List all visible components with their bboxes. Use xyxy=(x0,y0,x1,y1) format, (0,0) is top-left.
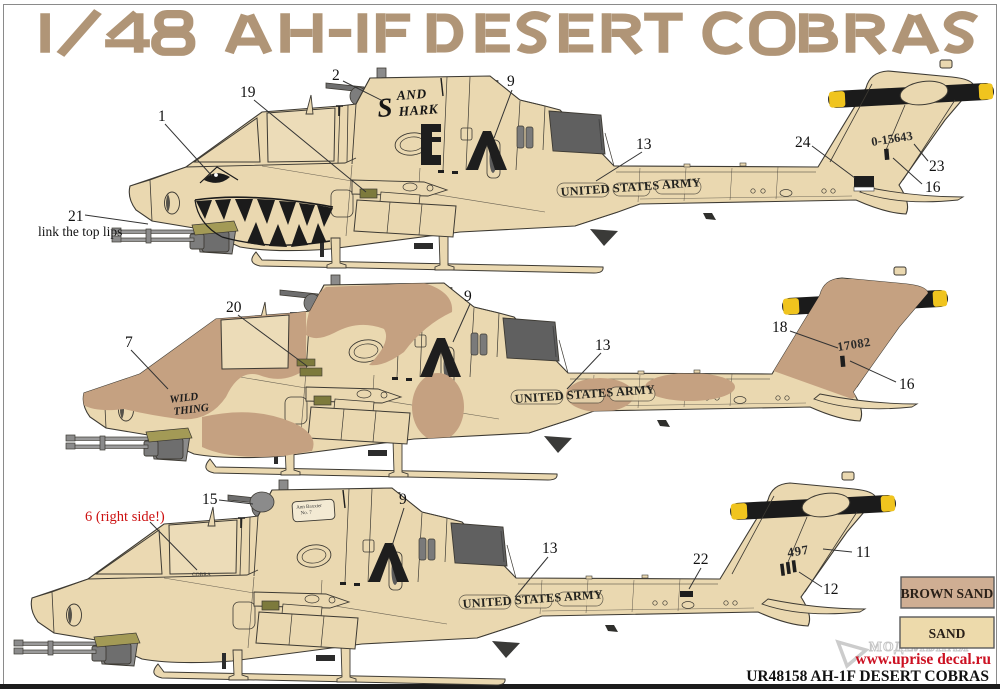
svg-text:12: 12 xyxy=(823,581,839,598)
svg-text:22: 22 xyxy=(693,551,709,568)
svg-text:9: 9 xyxy=(507,73,515,90)
svg-text:23: 23 xyxy=(929,158,945,175)
svg-text:7: 7 xyxy=(125,334,133,351)
svg-text:11: 11 xyxy=(856,544,871,561)
svg-text:24: 24 xyxy=(795,134,811,151)
svg-text:18: 18 xyxy=(772,319,788,336)
svg-text:UR48158 AH-1F DESERT COBRAS: UR48158 AH-1F DESERT COBRAS xyxy=(746,668,989,685)
svg-text:16: 16 xyxy=(899,376,915,393)
svg-text:BROWN SAND: BROWN SAND xyxy=(901,586,994,601)
svg-text:9: 9 xyxy=(399,491,407,508)
svg-text:21: 21 xyxy=(68,208,84,225)
svg-text:AND: AND xyxy=(395,86,427,103)
svg-text:link the top lips: link the top lips xyxy=(38,224,122,239)
svg-text:1: 1 xyxy=(158,108,166,125)
svg-text:15: 15 xyxy=(202,491,218,508)
svg-text:COBRA: COBRA xyxy=(192,572,211,578)
svg-text:13: 13 xyxy=(636,136,652,153)
svg-text:No. 7: No. 7 xyxy=(301,511,313,517)
svg-text:16: 16 xyxy=(925,179,941,196)
svg-text:9: 9 xyxy=(464,288,472,305)
svg-text:13: 13 xyxy=(595,337,611,354)
svg-text:S: S xyxy=(376,92,393,123)
svg-text:6 (right side!): 6 (right side!) xyxy=(85,509,165,525)
svg-text:HARK: HARK xyxy=(397,101,439,119)
svg-text:SAND: SAND xyxy=(929,626,966,641)
svg-text:20: 20 xyxy=(226,299,242,316)
svg-text:www.uprise decal.ru: www.uprise decal.ru xyxy=(855,651,991,668)
svg-text:13: 13 xyxy=(542,540,558,557)
svg-text:2: 2 xyxy=(332,67,340,84)
svg-text:19: 19 xyxy=(240,84,256,101)
